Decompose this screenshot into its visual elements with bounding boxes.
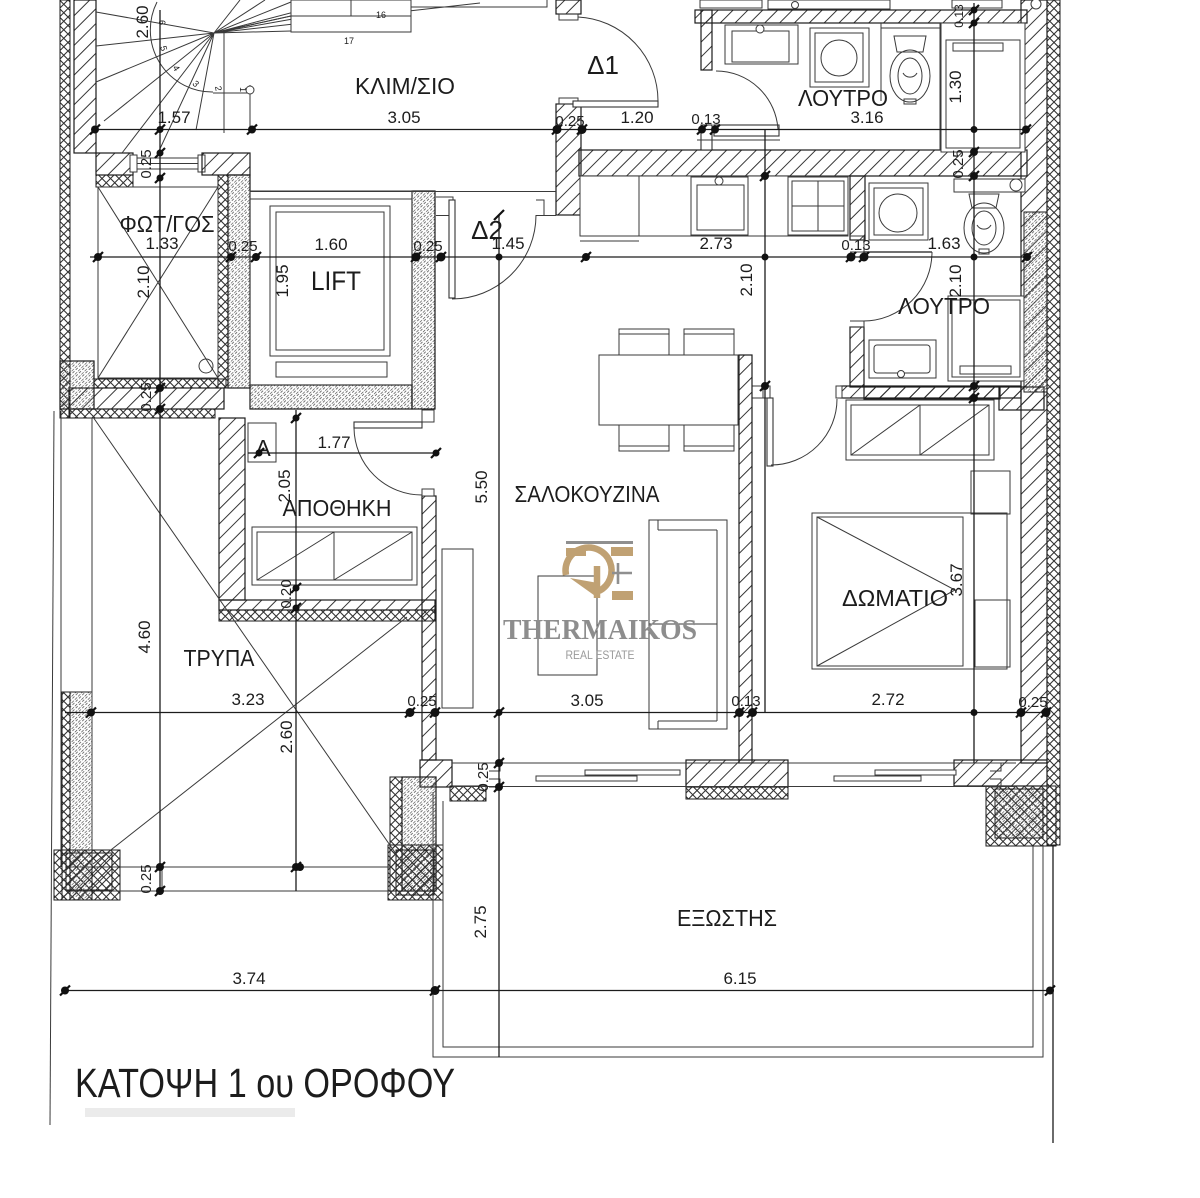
svg-text:17: 17 bbox=[344, 36, 354, 46]
svg-text:6: 6 bbox=[157, 20, 167, 25]
svg-text:1.60: 1.60 bbox=[314, 235, 347, 254]
svg-text:2.75: 2.75 bbox=[471, 905, 490, 938]
svg-text:0.20: 0.20 bbox=[278, 579, 295, 608]
svg-text:ΔΩΜΑΤΙΟ: ΔΩΜΑΤΙΟ bbox=[842, 585, 948, 611]
svg-text:ΛΟΥΤΡΟ: ΛΟΥΤΡΟ bbox=[898, 293, 990, 319]
svg-text:3.05: 3.05 bbox=[387, 108, 420, 127]
svg-text:3.67: 3.67 bbox=[947, 563, 966, 596]
svg-text:ΣΑΛΟΚΟΥΖΙΝΑ: ΣΑΛΟΚΟΥΖΙΝΑ bbox=[515, 481, 661, 507]
svg-text:ΕΞΩΣΤΗΣ: ΕΞΩΣΤΗΣ bbox=[677, 905, 777, 931]
svg-text:1.63: 1.63 bbox=[927, 234, 960, 253]
svg-text:2.73: 2.73 bbox=[699, 234, 732, 253]
svg-text:1.95: 1.95 bbox=[273, 264, 292, 297]
svg-text:5.50: 5.50 bbox=[472, 470, 491, 503]
svg-text:THERMAIKOS: THERMAIKOS bbox=[503, 614, 697, 646]
svg-text:0.13: 0.13 bbox=[691, 111, 720, 128]
svg-text:ΚΛΙΜ/ΣΙΟ: ΚΛΙΜ/ΣΙΟ bbox=[355, 73, 455, 99]
svg-text:3.74: 3.74 bbox=[232, 969, 265, 988]
svg-text:LIFT: LIFT bbox=[311, 266, 361, 296]
svg-text:0.25: 0.25 bbox=[475, 762, 492, 791]
svg-text:6.15: 6.15 bbox=[723, 969, 756, 988]
svg-text:0.25: 0.25 bbox=[407, 693, 436, 710]
svg-text:2.10: 2.10 bbox=[737, 263, 756, 296]
svg-text:0.25: 0.25 bbox=[950, 149, 967, 178]
svg-text:2.10: 2.10 bbox=[134, 265, 153, 298]
svg-text:0.25: 0.25 bbox=[228, 238, 257, 255]
svg-text:Δ1: Δ1 bbox=[587, 50, 619, 80]
svg-text:0.25: 0.25 bbox=[1018, 694, 1047, 711]
svg-text:2.60: 2.60 bbox=[277, 720, 296, 753]
svg-text:3.23: 3.23 bbox=[231, 690, 264, 709]
svg-text:ΚΑΤΟΨΗ 1 ου ΟΡΟΦΟΥ: ΚΑΤΟΨΗ 1 ου ΟΡΟΦΟΥ bbox=[75, 1060, 455, 1106]
svg-text:2.10: 2.10 bbox=[946, 264, 965, 297]
svg-text:2.05: 2.05 bbox=[275, 469, 294, 502]
svg-text:1.77: 1.77 bbox=[317, 433, 350, 452]
svg-text:0.25: 0.25 bbox=[555, 113, 584, 130]
svg-text:0.25: 0.25 bbox=[138, 382, 155, 411]
svg-text:0.25: 0.25 bbox=[138, 864, 155, 893]
svg-text:0.25: 0.25 bbox=[413, 238, 442, 255]
svg-text:ΤΡΥΠΑ: ΤΡΥΠΑ bbox=[184, 645, 256, 671]
svg-text:1.20: 1.20 bbox=[620, 108, 653, 127]
svg-text:3.05: 3.05 bbox=[570, 691, 603, 710]
svg-text:0.13: 0.13 bbox=[731, 693, 760, 710]
svg-text:2.60: 2.60 bbox=[133, 5, 152, 38]
svg-text:3.16: 3.16 bbox=[850, 108, 883, 127]
svg-text:1.33: 1.33 bbox=[145, 234, 178, 253]
svg-text:1.30: 1.30 bbox=[946, 70, 965, 103]
svg-text:2.72: 2.72 bbox=[871, 690, 904, 709]
svg-text:REAL ESTATE: REAL ESTATE bbox=[566, 648, 635, 662]
svg-text:4.60: 4.60 bbox=[135, 620, 154, 653]
svg-text:1.57: 1.57 bbox=[157, 108, 190, 127]
svg-text:0.13: 0.13 bbox=[841, 237, 870, 254]
svg-text:16: 16 bbox=[376, 10, 386, 20]
svg-text:ΑΠΟΘΗΚΗ: ΑΠΟΘΗΚΗ bbox=[283, 495, 392, 521]
svg-text:0.13: 0.13 bbox=[952, 4, 966, 28]
svg-text:1: 1 bbox=[238, 87, 248, 92]
svg-text:0.25: 0.25 bbox=[138, 149, 155, 178]
svg-text:1.45: 1.45 bbox=[491, 234, 524, 253]
